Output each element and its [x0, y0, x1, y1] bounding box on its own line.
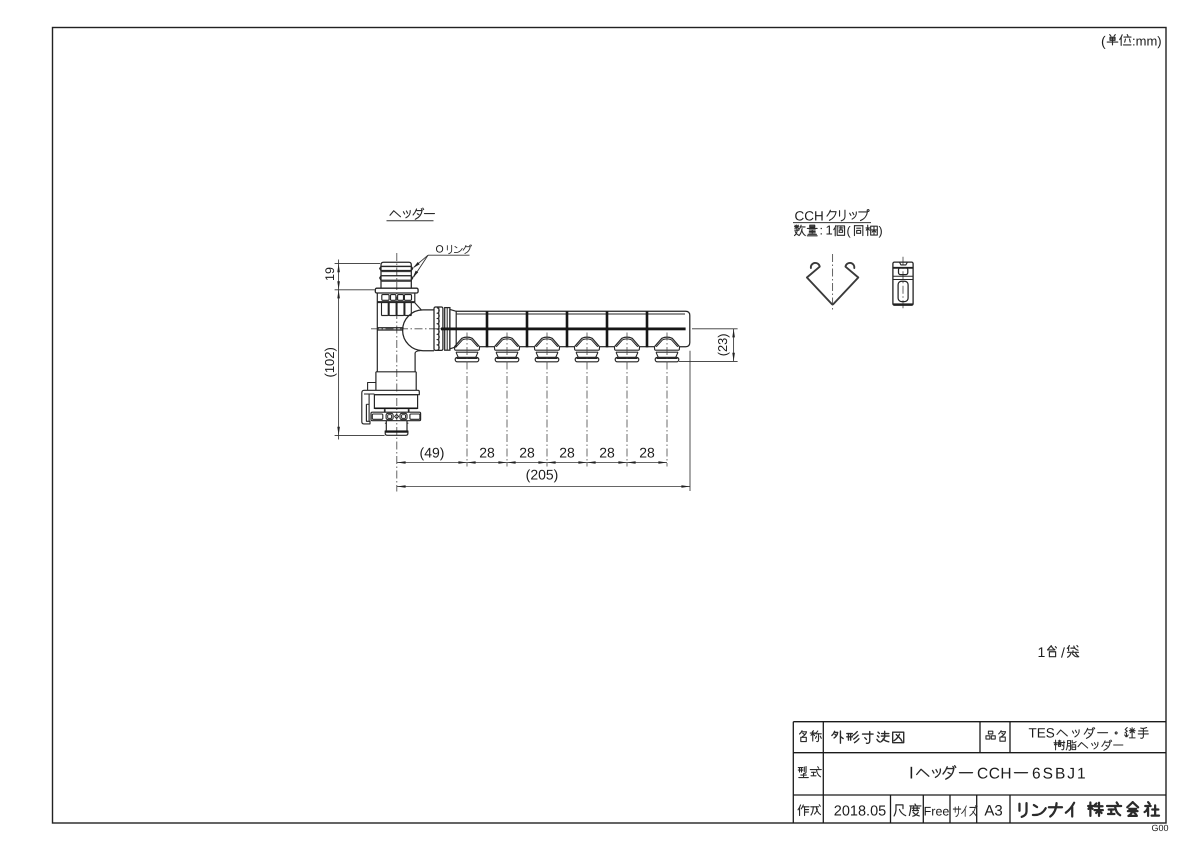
svg-text:19: 19 — [323, 267, 337, 281]
svg-text::: : — [820, 224, 823, 238]
svg-text:(23): (23) — [715, 333, 730, 356]
svg-text:28: 28 — [479, 445, 495, 461]
svg-text:(102): (102) — [322, 347, 337, 377]
svg-text:2018.05: 2018.05 — [834, 804, 886, 820]
svg-text:28: 28 — [639, 445, 655, 461]
svg-text:(: ( — [847, 224, 852, 238]
svg-text:28: 28 — [599, 445, 615, 461]
svg-text:I: I — [909, 764, 914, 783]
svg-text:): ) — [879, 224, 883, 238]
svg-text:CCH: CCH — [795, 209, 824, 224]
svg-text:1: 1 — [826, 223, 833, 238]
svg-text:28: 28 — [519, 445, 535, 461]
svg-text:Free: Free — [924, 805, 950, 819]
svg-text:(205): (205) — [526, 467, 559, 483]
svg-text:28: 28 — [559, 445, 575, 461]
svg-text:(: ( — [1101, 33, 1106, 49]
svg-text:1: 1 — [1038, 644, 1046, 660]
svg-text:CCH: CCH — [977, 766, 1012, 783]
svg-text::mm): :mm) — [1132, 33, 1162, 48]
svg-text:O: O — [436, 244, 444, 256]
svg-text:(49): (49) — [420, 445, 445, 461]
svg-text:6SBJ1: 6SBJ1 — [1032, 766, 1088, 783]
svg-text:TES: TES — [1029, 726, 1055, 741]
svg-text:G00: G00 — [1152, 823, 1169, 833]
svg-text:A3: A3 — [984, 803, 1002, 820]
svg-text:/: / — [1061, 645, 1065, 661]
